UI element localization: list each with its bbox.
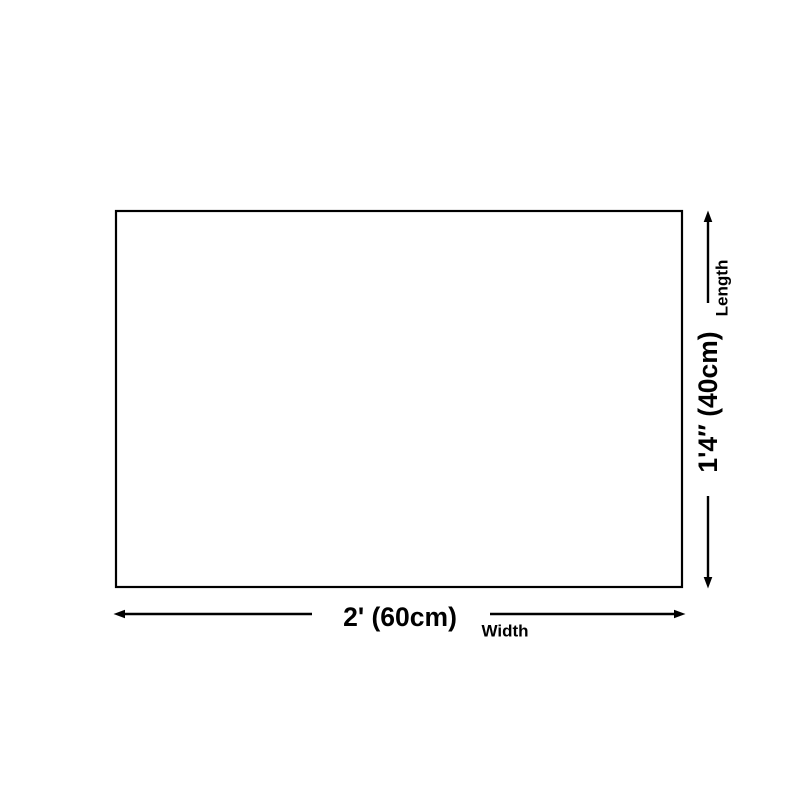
svg-text:1'4″ (40cm): 1'4″ (40cm) (693, 331, 723, 472)
svg-text:Width: Width (481, 622, 528, 641)
svg-text:2' (60cm): 2' (60cm) (343, 602, 457, 632)
svg-text:Length: Length (713, 260, 732, 317)
